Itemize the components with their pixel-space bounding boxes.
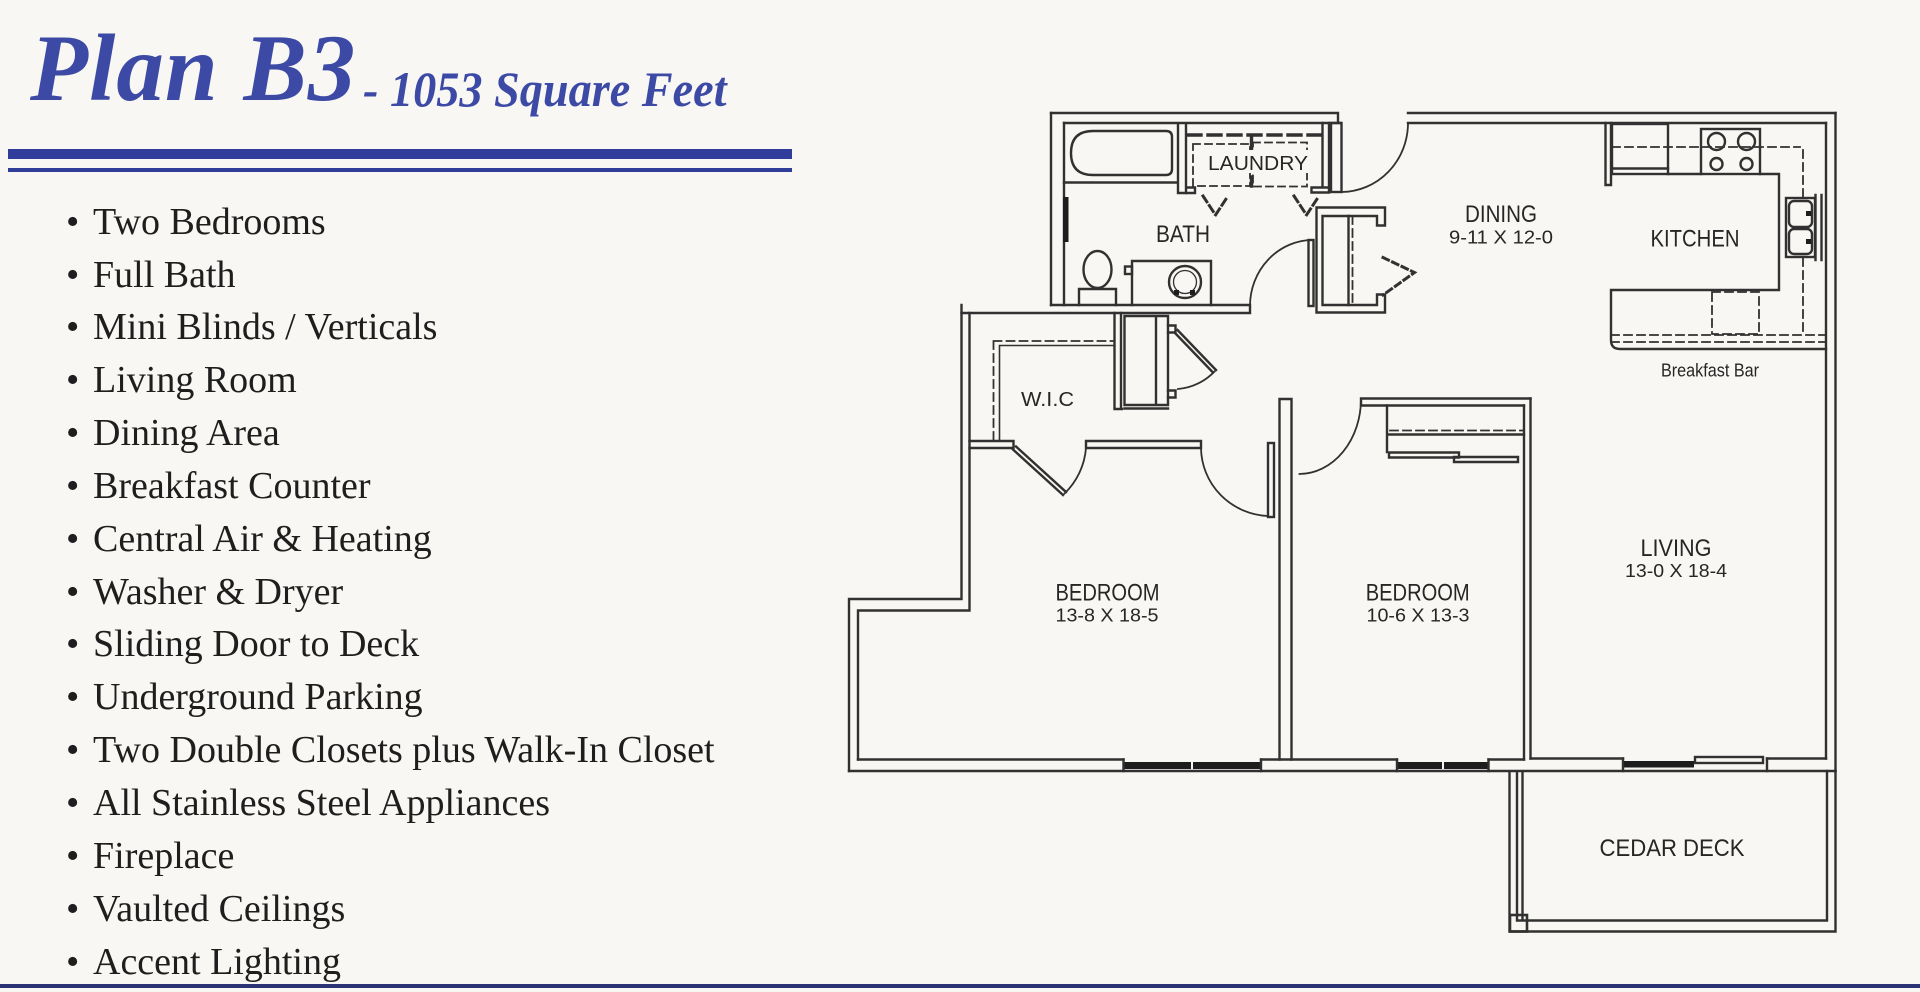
svg-text:13-0 X 18-4: 13-0 X 18-4 bbox=[1625, 561, 1727, 581]
svg-text:BATH: BATH bbox=[1156, 221, 1210, 248]
svg-text:W.I.C: W.I.C bbox=[1021, 389, 1074, 411]
svg-text:KITCHEN: KITCHEN bbox=[1651, 226, 1740, 253]
svg-text:BEDROOM: BEDROOM bbox=[1056, 580, 1160, 607]
svg-text:BEDROOM: BEDROOM bbox=[1366, 580, 1470, 607]
svg-text:CEDAR DECK: CEDAR DECK bbox=[1600, 835, 1745, 862]
svg-text:9-11 X 12-0: 9-11 X 12-0 bbox=[1449, 228, 1553, 248]
svg-text:DINING: DINING bbox=[1465, 201, 1537, 228]
svg-text:Breakfast Bar: Breakfast Bar bbox=[1661, 361, 1759, 381]
svg-text:10-6 X 13-3: 10-6 X 13-3 bbox=[1367, 606, 1470, 626]
svg-text:LIVING: LIVING bbox=[1641, 535, 1712, 562]
svg-text:13-8 X 18-5: 13-8 X 18-5 bbox=[1056, 606, 1159, 626]
svg-text:LAUNDRY: LAUNDRY bbox=[1208, 153, 1308, 175]
